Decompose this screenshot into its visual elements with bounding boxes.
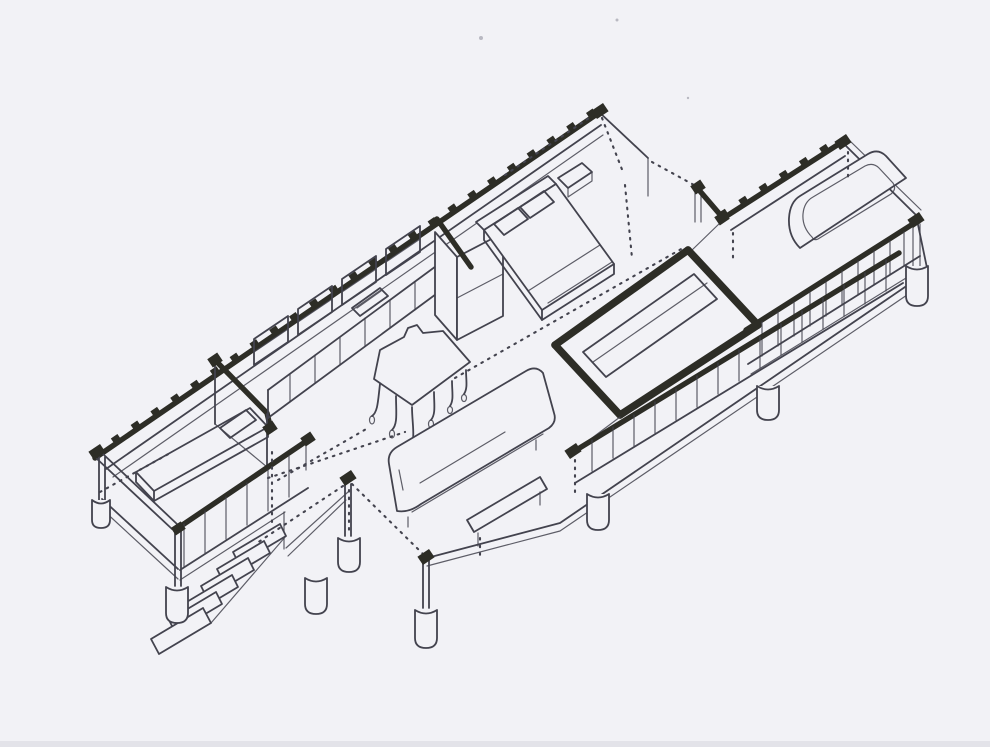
scan-artifacts bbox=[0, 19, 990, 747]
left-bedroom bbox=[136, 408, 268, 501]
scanned-sketch-page bbox=[0, 0, 990, 747]
isometric-house-sketch bbox=[0, 0, 990, 747]
louver-band bbox=[746, 222, 920, 374]
front-railing bbox=[573, 253, 903, 483]
bathroom bbox=[720, 139, 927, 268]
